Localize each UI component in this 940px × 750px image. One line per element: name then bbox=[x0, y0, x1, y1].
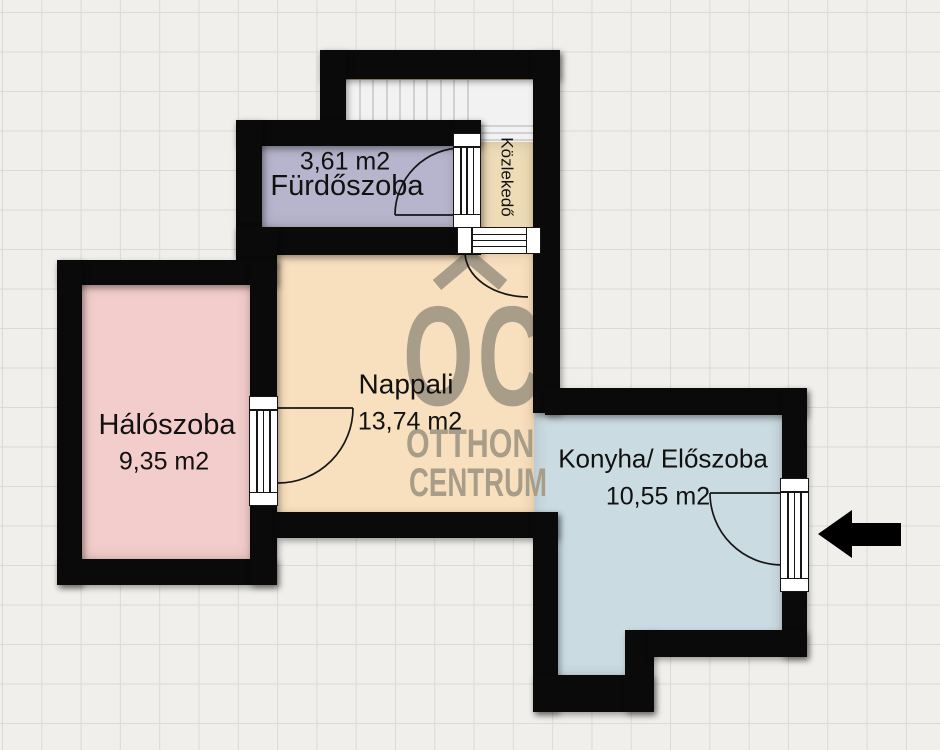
wall-bedroom-left bbox=[57, 260, 82, 585]
floor-plan: OC OTTHON CENTRUM bbox=[0, 0, 940, 750]
wall-bedroom-bottom bbox=[57, 559, 277, 585]
room-label-haloszoba: Hálószoba bbox=[98, 410, 235, 442]
room-label-konyha: Konyha/ Előszoba bbox=[558, 445, 768, 474]
hallway-door-frame bbox=[457, 227, 541, 254]
door-frame-line bbox=[263, 410, 264, 492]
wall-livingroom-bottom bbox=[277, 512, 558, 538]
wall-stair-top bbox=[320, 50, 560, 79]
stairs-landing bbox=[481, 80, 533, 142]
bedroom-door-frame bbox=[249, 396, 278, 506]
door-frame-line bbox=[800, 492, 801, 578]
bathroom-door-frame bbox=[453, 133, 481, 228]
stairs-upper-run bbox=[346, 80, 533, 120]
door-frame-line bbox=[466, 147, 467, 214]
wall-bathroom-top bbox=[236, 120, 481, 146]
door-frame-line bbox=[787, 492, 788, 578]
watermark-line2: CENTRUM bbox=[409, 463, 547, 503]
entrance-door-frame bbox=[780, 478, 809, 592]
wall-corner bbox=[236, 227, 277, 264]
wall-kitchen-top bbox=[545, 388, 807, 415]
door-frame-line bbox=[472, 246, 526, 247]
wall-kitchen-bottom-right bbox=[648, 630, 807, 657]
room-label-kozlekedo: Közlekedő bbox=[497, 137, 516, 216]
room-label-furdoszoba: Fürdőszoba bbox=[270, 171, 423, 203]
door-frame-line bbox=[472, 234, 526, 235]
room-area-konyha: 10,55 m2 bbox=[606, 483, 710, 511]
room-label-nappali: Nappali bbox=[359, 370, 454, 401]
room-area-nappali: 13,74 m2 bbox=[358, 408, 462, 436]
wall-bedroom-top bbox=[57, 260, 277, 285]
door-frame-line bbox=[472, 240, 526, 241]
door-frame-line bbox=[256, 410, 257, 492]
entrance-arrow-icon bbox=[818, 510, 901, 558]
door-frame-line bbox=[794, 492, 795, 578]
door-frame-line bbox=[460, 147, 461, 214]
room-area-haloszoba: 9,35 m2 bbox=[119, 448, 209, 476]
door-frame-line bbox=[269, 410, 270, 492]
wall-stair-left bbox=[320, 50, 346, 125]
door-frame-line bbox=[473, 147, 474, 214]
